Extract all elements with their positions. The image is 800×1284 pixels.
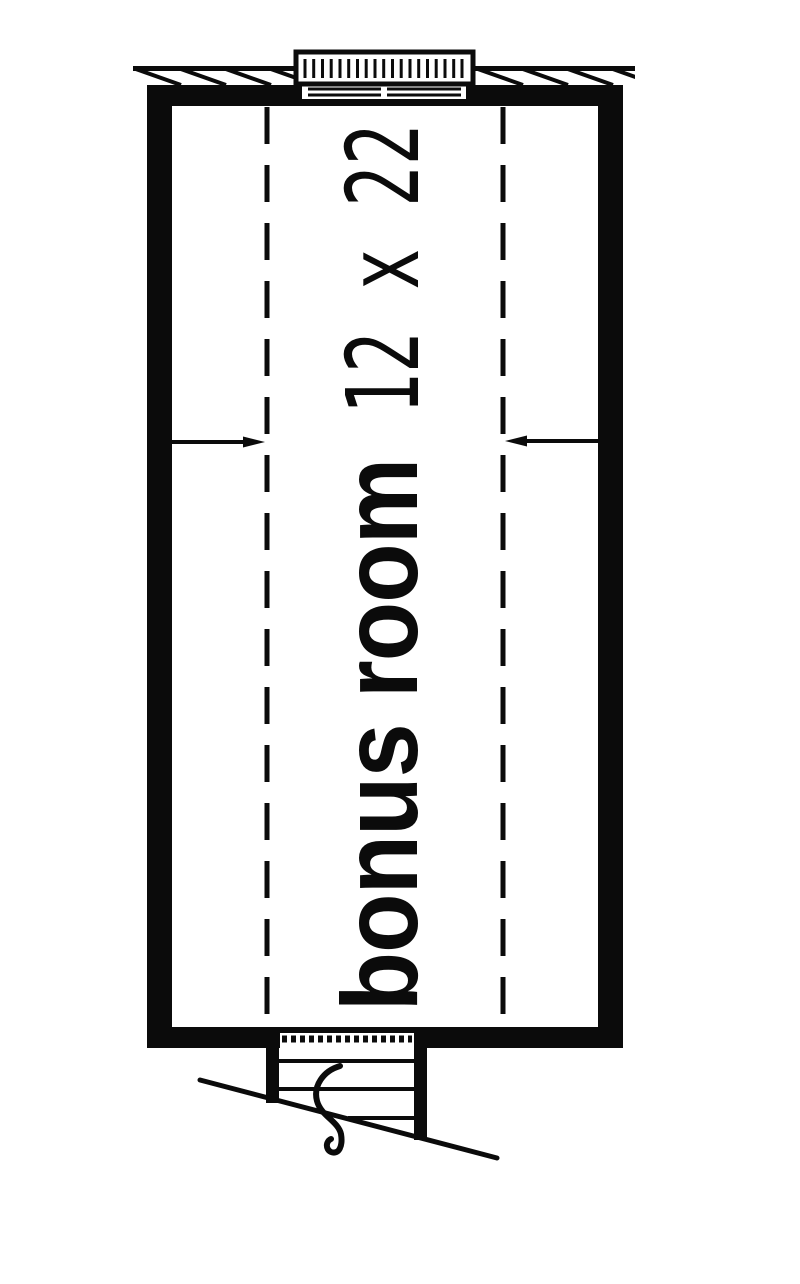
room-walls: [147, 85, 623, 1048]
dimension-arrow-right: [505, 436, 598, 447]
break-line: [200, 1066, 497, 1158]
staircase: [266, 1048, 427, 1140]
roof-overhang-hatch-left: [133, 66, 316, 85]
break-squiggle: [316, 1066, 341, 1153]
stair-opening: [280, 1033, 414, 1048]
window-opening: [302, 85, 466, 99]
floor-plan-page: 12 x 22 bonus room: [0, 0, 800, 1284]
knee-wall-dashed-lines: [267, 107, 503, 1027]
louvered-vent: [296, 52, 473, 84]
roof-overhang-hatch-right: [473, 66, 658, 85]
dimension-arrow-left: [172, 437, 265, 448]
floorplan-drawing: [0, 0, 800, 1284]
